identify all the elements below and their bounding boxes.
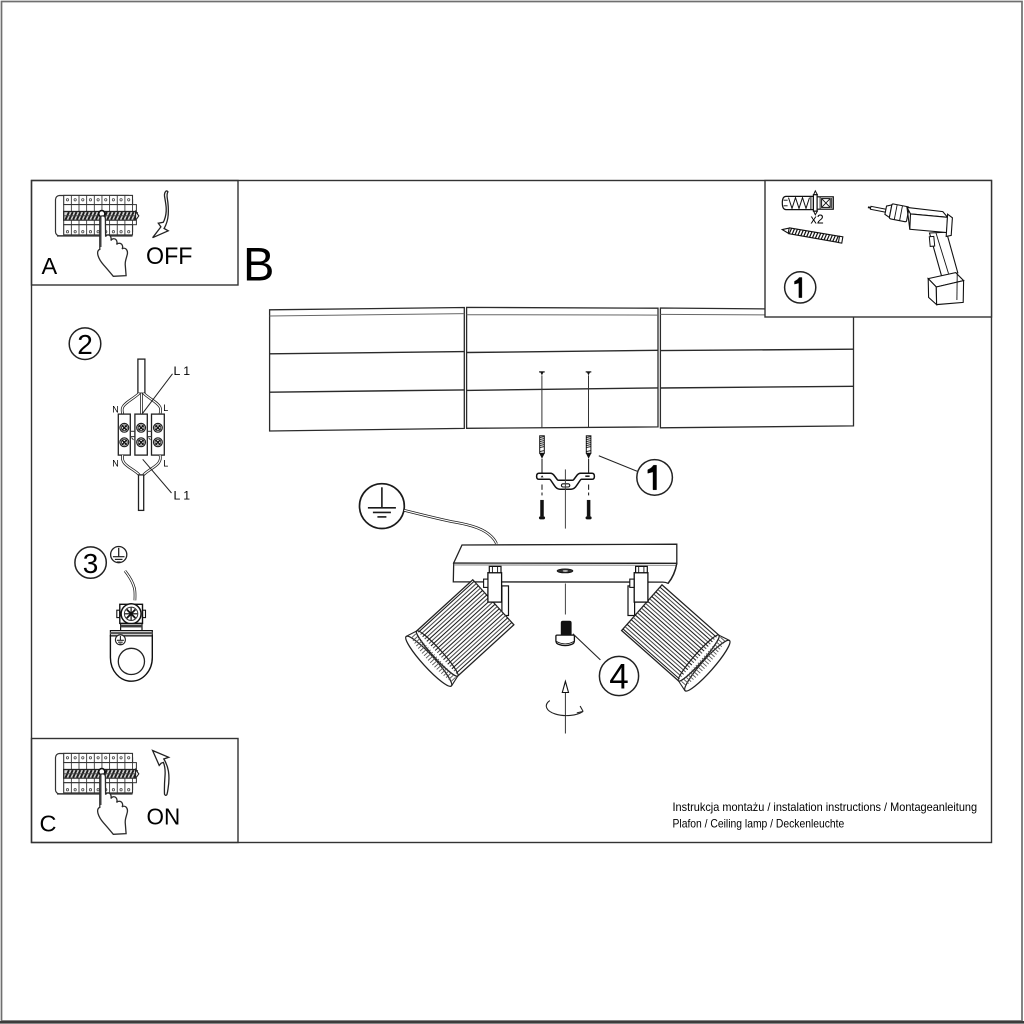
svg-text:L: L	[163, 458, 168, 468]
svg-text:L 1: L 1	[174, 488, 191, 502]
svg-text:B: B	[243, 238, 274, 291]
svg-text:4: 4	[609, 658, 628, 697]
svg-text:N: N	[112, 458, 119, 468]
svg-text:C: C	[40, 811, 57, 837]
svg-text:L 1: L 1	[174, 364, 191, 378]
svg-text:Instrukcja montażu / instalati: Instrukcja montażu / instalation instruc…	[673, 800, 978, 814]
svg-text:3: 3	[83, 548, 99, 579]
svg-text:Plafon / Ceiling lamp / Decken: Plafon / Ceiling lamp / Deckenleuchte	[673, 817, 845, 831]
svg-text:A: A	[42, 253, 58, 279]
svg-text:ON: ON	[147, 803, 181, 829]
svg-text:x2: x2	[811, 213, 824, 227]
svg-text:N: N	[112, 404, 119, 414]
svg-text:L: L	[163, 403, 168, 413]
svg-text:2: 2	[77, 329, 93, 360]
svg-text:OFF: OFF	[146, 243, 193, 270]
